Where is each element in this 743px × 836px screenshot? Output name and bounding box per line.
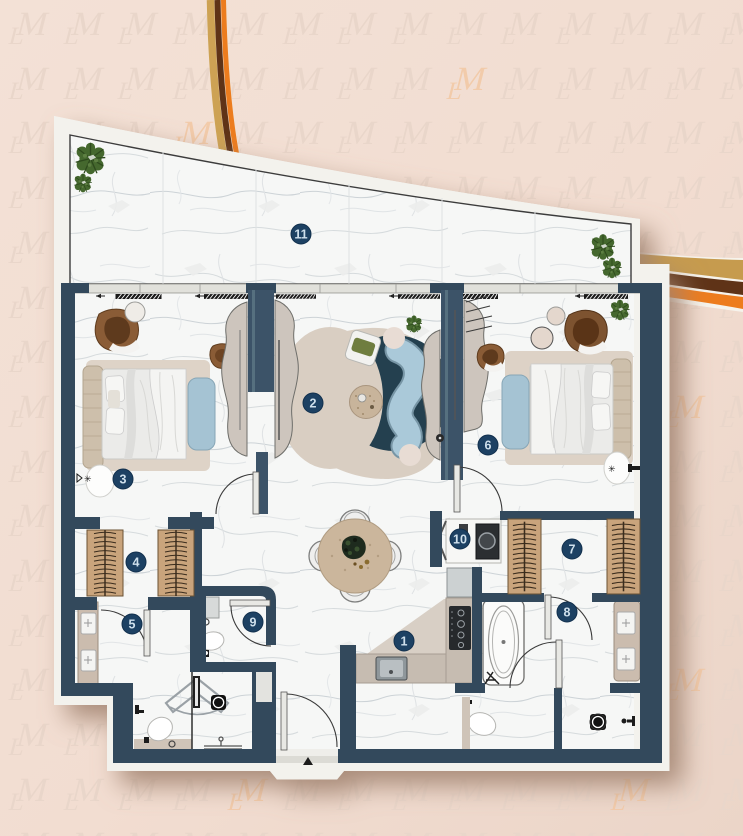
svg-text:1: 1: [401, 635, 408, 649]
svg-text:8: 8: [564, 606, 571, 620]
svg-text:✳: ✳: [84, 474, 92, 484]
svg-text:2: 2: [310, 397, 317, 411]
svg-text:7: 7: [569, 543, 576, 557]
svg-text:5: 5: [129, 618, 136, 632]
svg-text:✳: ✳: [608, 464, 616, 474]
svg-text:10: 10: [453, 533, 467, 547]
svg-text:11: 11: [294, 228, 307, 242]
svg-text:3: 3: [120, 473, 127, 487]
svg-text:4: 4: [133, 556, 140, 570]
svg-text:9: 9: [250, 616, 257, 630]
svg-text:6: 6: [485, 439, 492, 453]
